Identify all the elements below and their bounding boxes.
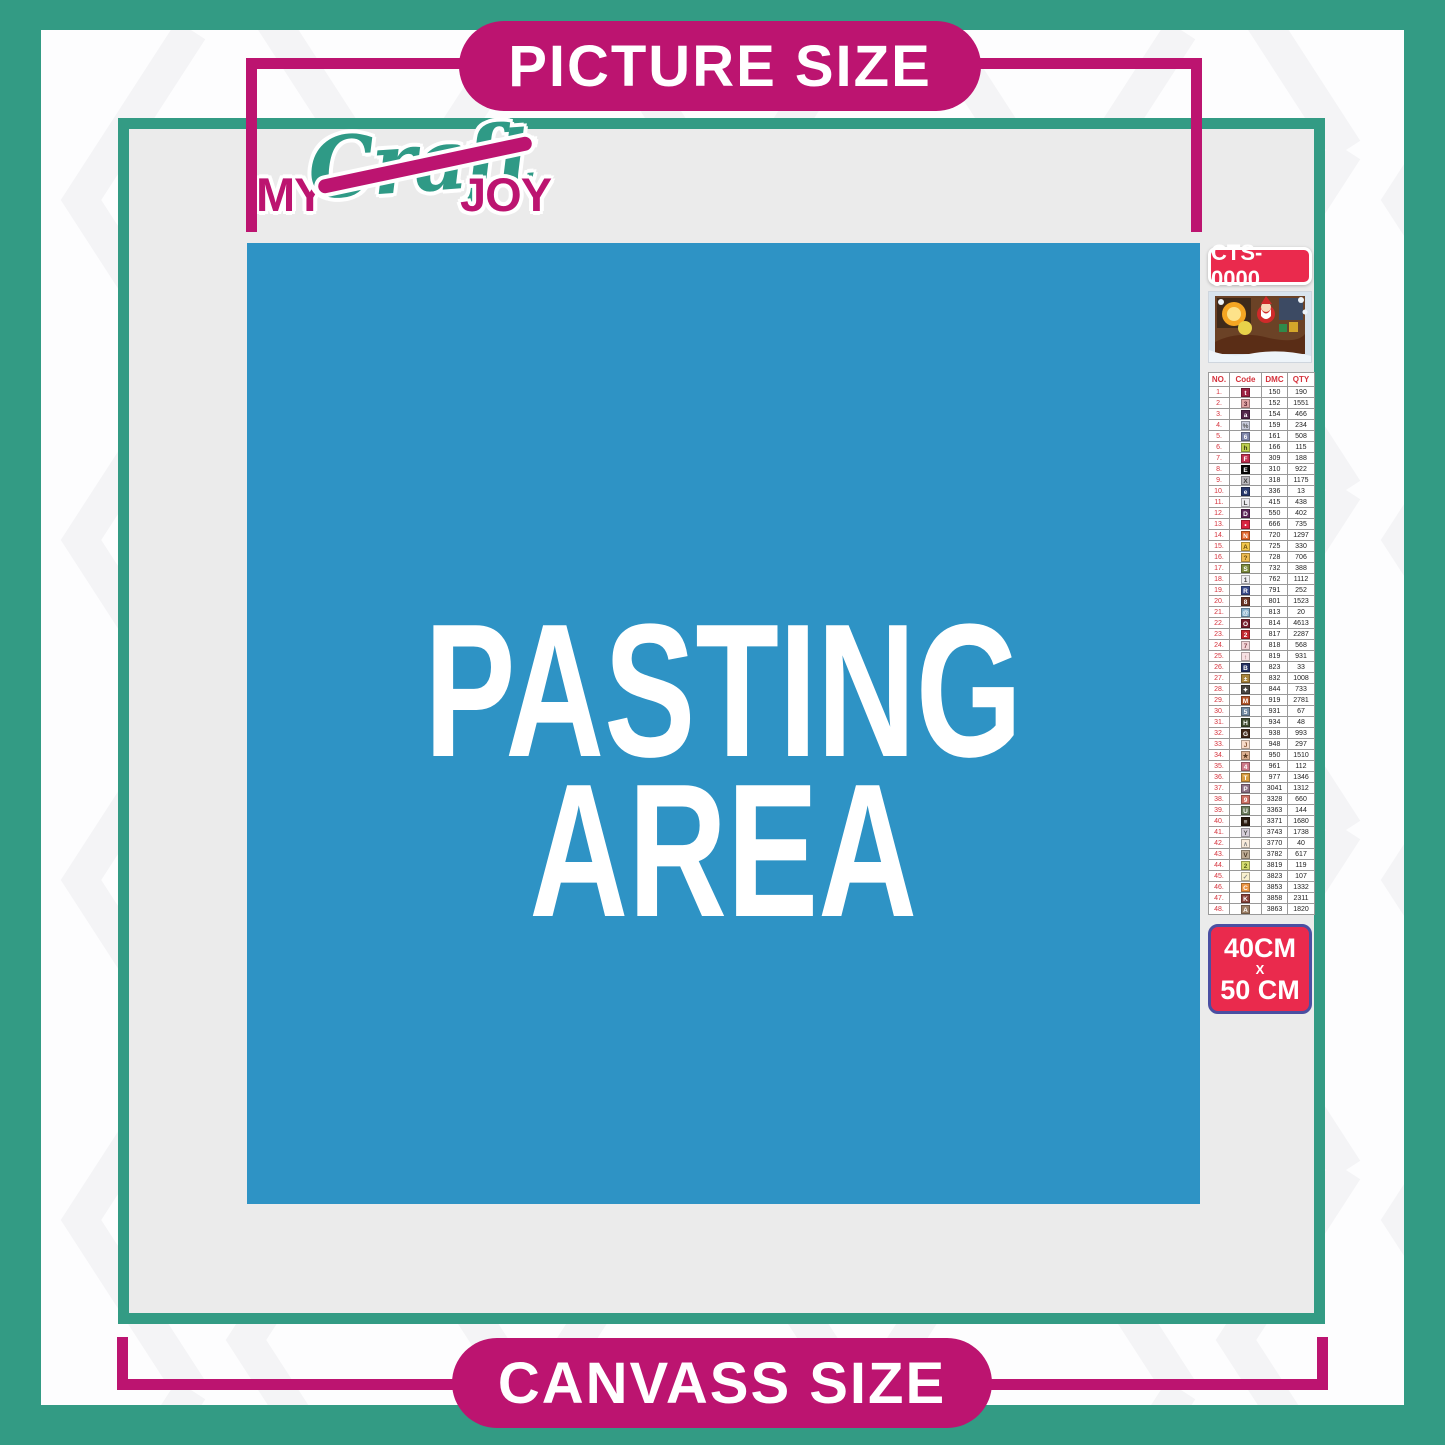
legend-cell-dmc: 3782 (1262, 849, 1288, 860)
legend-symbol-swatch: 3 (1241, 399, 1250, 408)
legend-cell-no: 26. (1209, 662, 1230, 673)
legend-cell-dmc: 813 (1262, 607, 1288, 618)
legend-cell-no: 8. (1209, 464, 1230, 475)
legend-symbol-swatch: 5 (1241, 707, 1250, 716)
legend-row: 44.23819119 (1209, 860, 1315, 871)
legend-cell-no: 19. (1209, 585, 1230, 596)
legend-cell-no: 6. (1209, 442, 1230, 453)
legend-cell-code: Y (1230, 827, 1262, 838)
legend-cell-code: ✦ (1230, 684, 1262, 695)
legend-symbol-swatch: U (1241, 806, 1250, 815)
kit-size-x: X (1256, 963, 1265, 976)
legend-cell-no: 21. (1209, 607, 1230, 618)
legend-cell-dmc: 3863 (1262, 904, 1288, 915)
legend-symbol-swatch: V (1241, 850, 1250, 859)
legend-cell-qty: 735 (1288, 519, 1315, 530)
legend-cell-qty: 733 (1288, 684, 1315, 695)
legend-row: 7.F309188 (1209, 453, 1315, 464)
legend-cell-dmc: 931 (1262, 706, 1288, 717)
legend-cell-qty: 330 (1288, 541, 1315, 552)
legend-row: 4.%159234 (1209, 420, 1315, 431)
legend-cell-no: 3. (1209, 409, 1230, 420)
legend-cell-dmc: 950 (1262, 750, 1288, 761)
legend-cell-dmc: 415 (1262, 497, 1288, 508)
legend-symbol-swatch: P (1241, 784, 1250, 793)
legend-cell-qty: 1297 (1288, 530, 1315, 541)
legend-cell-no: 32. (1209, 728, 1230, 739)
legend-cell-code: h (1230, 442, 1262, 453)
legend-symbol-swatch: A (1241, 905, 1250, 914)
legend-cell-code: E (1230, 464, 1262, 475)
legend-row: 35.4961112 (1209, 761, 1315, 772)
legend-symbol-swatch: 8 (1241, 597, 1250, 606)
legend-cell-code: D (1230, 508, 1262, 519)
product-code-label: CTS-0000 (1211, 240, 1309, 292)
legend-cell-no: 23. (1209, 629, 1230, 640)
legend-cell-dmc: 3858 (1262, 893, 1288, 904)
legend-symbol-swatch: G (1241, 729, 1250, 738)
legend-row: 30.593167 (1209, 706, 1315, 717)
legend-cell-dmc: 844 (1262, 684, 1288, 695)
legend-row: 5.6161508 (1209, 431, 1315, 442)
legend-cell-no: 28. (1209, 684, 1230, 695)
legend-row: 47.K38582311 (1209, 893, 1315, 904)
legend-symbol-swatch: h (1241, 443, 1250, 452)
legend-row: 6.h166115 (1209, 442, 1315, 453)
legend-cell-dmc: 720 (1262, 530, 1288, 541)
legend-cell-qty: 13 (1288, 486, 1315, 497)
legend-symbol-swatch: ✦ (1241, 685, 1250, 694)
legend-row: 32.G938993 (1209, 728, 1315, 739)
legend-cell-dmc: 3328 (1262, 794, 1288, 805)
legend-row: 34.★9501510 (1209, 750, 1315, 761)
product-thumbnail (1208, 291, 1312, 363)
legend-row: 20.88011523 (1209, 596, 1315, 607)
legend-cell-no: 31. (1209, 717, 1230, 728)
legend-cell-no: 38. (1209, 794, 1230, 805)
brand-logo: MY Craft JOY (256, 124, 546, 236)
legend-cell-qty: 922 (1288, 464, 1315, 475)
legend-cell-no: 11. (1209, 497, 1230, 508)
legend-cell-qty: 466 (1288, 409, 1315, 420)
legend-row: 43.V3782617 (1209, 849, 1315, 860)
legend-symbol-swatch: • (1241, 520, 1250, 529)
legend-cell-no: 16. (1209, 552, 1230, 563)
legend-cell-no: 29. (1209, 695, 1230, 706)
legend-cell-qty: 234 (1288, 420, 1315, 431)
canvas-template-page: MY Craft JOY PASTING AREA PICTURE SIZE C… (0, 0, 1445, 1445)
kit-size-height: 50 CM (1220, 977, 1300, 1004)
legend-symbol-swatch: 2 (1241, 630, 1250, 639)
pasting-area: PASTING AREA (247, 243, 1200, 1204)
legend-row: 26.B82333 (1209, 662, 1315, 673)
legend-cell-dmc: 934 (1262, 717, 1288, 728)
legend-cell-no: 15. (1209, 541, 1230, 552)
legend-cell-code: F (1230, 453, 1262, 464)
legend-cell-qty: 568 (1288, 640, 1315, 651)
legend-symbol-swatch: ± (1241, 674, 1250, 683)
legend-cell-code: 6 (1230, 431, 1262, 442)
legend-symbol-swatch: K (1241, 894, 1250, 903)
canvass-bracket-left-rise (117, 1337, 128, 1390)
legend-cell-code: 3 (1230, 398, 1262, 409)
legend-cell-no: 33. (1209, 739, 1230, 750)
legend-symbol-swatch: ↑ (1241, 652, 1250, 661)
legend-cell-code: ★ (1230, 750, 1262, 761)
legend-cell-code: J (1230, 739, 1262, 750)
legend-cell-no: 35. (1209, 761, 1230, 772)
legend-cell-dmc: 725 (1262, 541, 1288, 552)
legend-cell-no: 25. (1209, 651, 1230, 662)
legend-cell-code: P (1230, 783, 1262, 794)
legend-cell-qty: 2311 (1288, 893, 1315, 904)
legend-cell-dmc: 150 (1262, 387, 1288, 398)
legend-row: 24.7818568 (1209, 640, 1315, 651)
legend-symbol-swatch: H (1241, 718, 1250, 727)
legend-cell-qty: 660 (1288, 794, 1315, 805)
legend-row: 3.a154466 (1209, 409, 1315, 420)
legend-cell-no: 46. (1209, 882, 1230, 893)
legend-cell-qty: 40 (1288, 838, 1315, 849)
legend-row: 13.•666735 (1209, 519, 1315, 530)
legend-cell-code: A (1230, 541, 1262, 552)
canvass-bracket-right-rise (1317, 1337, 1328, 1390)
legend-cell-no: 9. (1209, 475, 1230, 486)
legend-row: 1.t150190 (1209, 387, 1315, 398)
legend-cell-dmc: 823 (1262, 662, 1288, 673)
legend-cell-dmc: 801 (1262, 596, 1288, 607)
legend-symbol-swatch: ∧ (1241, 839, 1250, 848)
legend-cell-code: 2 (1230, 860, 1262, 871)
legend-symbol-swatch: 9 (1241, 795, 1250, 804)
legend-row: 16.?728706 (1209, 552, 1315, 563)
legend-cell-code: 7 (1230, 640, 1262, 651)
legend-row: 33.J948297 (1209, 739, 1315, 750)
legend-row: 11.L415438 (1209, 497, 1315, 508)
legend-row: 45.✓3823107 (1209, 871, 1315, 882)
legend-cell-qty: 297 (1288, 739, 1315, 750)
legend-symbol-swatch: ★ (1241, 751, 1250, 760)
legend-cell-no: 2. (1209, 398, 1230, 409)
legend-symbol-swatch: N (1241, 531, 1250, 540)
legend-cell-dmc: 732 (1262, 563, 1288, 574)
legend-cell-code: t (1230, 387, 1262, 398)
legend-cell-dmc: 819 (1262, 651, 1288, 662)
legend-cell-qty: 252 (1288, 585, 1315, 596)
legend-cell-dmc: 814 (1262, 618, 1288, 629)
legend-cell-code: X (1230, 475, 1262, 486)
legend-cell-dmc: 938 (1262, 728, 1288, 739)
canvass-size-label: CANVASS SIZE (498, 1350, 946, 1417)
legend-cell-qty: 67 (1288, 706, 1315, 717)
legend-cell-qty: 112 (1288, 761, 1315, 772)
legend-cell-no: 5. (1209, 431, 1230, 442)
legend-cell-dmc: 3770 (1262, 838, 1288, 849)
legend-cell-dmc: 3819 (1262, 860, 1288, 871)
legend-cell-qty: 1008 (1288, 673, 1315, 684)
legend-cell-code: B (1230, 662, 1262, 673)
legend-cell-dmc: 3371 (1262, 816, 1288, 827)
legend-cell-code: C (1230, 882, 1262, 893)
legend-cell-qty: 1112 (1288, 574, 1315, 585)
legend-row: 39.U3363144 (1209, 805, 1315, 816)
legend-cell-dmc: 762 (1262, 574, 1288, 585)
legend-symbol-swatch: C (1241, 883, 1250, 892)
legend-header-row: NO. Code DMC QTY (1209, 373, 1315, 387)
legend-cell-dmc: 948 (1262, 739, 1288, 750)
legend-cell-code: ? (1230, 552, 1262, 563)
legend-cell-qty: 33 (1288, 662, 1315, 673)
legend-symbol-swatch: 4 (1241, 762, 1250, 771)
legend-table-body: 1.t1501902.315215513.a1544664.%1592345.6… (1209, 387, 1315, 915)
legend-symbol-swatch: J (1241, 740, 1250, 749)
picture-bracket-right-drop (1191, 58, 1202, 232)
legend-cell-dmc: 166 (1262, 442, 1288, 453)
legend-row: 42.∧377040 (1209, 838, 1315, 849)
legend-symbol-swatch: D (1241, 509, 1250, 518)
legend-cell-dmc: 3823 (1262, 871, 1288, 882)
legend-cell-qty: 706 (1288, 552, 1315, 563)
legend-symbol-swatch: 1 (1241, 575, 1250, 584)
legend-row: 21.@81320 (1209, 607, 1315, 618)
legend-cell-no: 13. (1209, 519, 1230, 530)
legend-symbol-swatch: L (1241, 498, 1250, 507)
legend-cell-no: 44. (1209, 860, 1230, 871)
legend-cell-no: 20. (1209, 596, 1230, 607)
legend-row: 8.E310922 (1209, 464, 1315, 475)
legend-row: 14.N7201297 (1209, 530, 1315, 541)
legend-symbol-swatch: S (1241, 564, 1250, 573)
legend-row: 12.D550402 (1209, 508, 1315, 519)
legend-cell-code: L (1230, 497, 1262, 508)
legend-cell-code: ≡ (1230, 816, 1262, 827)
legend-cell-qty: 617 (1288, 849, 1315, 860)
legend-row: 29.M9192781 (1209, 695, 1315, 706)
legend-cell-qty: 1332 (1288, 882, 1315, 893)
legend-cell-dmc: 154 (1262, 409, 1288, 420)
legend-cell-code: 4 (1230, 761, 1262, 772)
legend-symbol-swatch: 6 (1241, 432, 1250, 441)
legend-row: 19.R791252 (1209, 585, 1315, 596)
legend-cell-code: V (1230, 849, 1262, 860)
legend-cell-no: 39. (1209, 805, 1230, 816)
legend-cell-dmc: 817 (1262, 629, 1288, 640)
legend-row: 10.e33613 (1209, 486, 1315, 497)
legend-cell-qty: 1346 (1288, 772, 1315, 783)
canvass-size-pill: CANVASS SIZE (452, 1338, 992, 1428)
legend-symbol-swatch: E (1241, 465, 1250, 474)
legend-header-qty: QTY (1288, 373, 1315, 387)
legend-cell-code: R (1230, 585, 1262, 596)
legend-cell-qty: 2781 (1288, 695, 1315, 706)
legend-cell-qty: 4613 (1288, 618, 1315, 629)
legend-row: 17.S732388 (1209, 563, 1315, 574)
legend-cell-dmc: 977 (1262, 772, 1288, 783)
legend-cell-dmc: 3041 (1262, 783, 1288, 794)
legend-cell-qty: 48 (1288, 717, 1315, 728)
legend-row: 18.17621112 (1209, 574, 1315, 585)
legend-cell-dmc: 791 (1262, 585, 1288, 596)
legend-row: 25.↑819931 (1209, 651, 1315, 662)
legend-cell-code: a (1230, 409, 1262, 420)
legend-cell-dmc: 3853 (1262, 882, 1288, 893)
legend-cell-dmc: 310 (1262, 464, 1288, 475)
legend-cell-qty: 1551 (1288, 398, 1315, 409)
legend-cell-code: ✓ (1230, 871, 1262, 882)
legend-row: 15.A725330 (1209, 541, 1315, 552)
legend-panel: CTS-0000 (1208, 247, 1314, 1014)
kit-size-width: 40CM (1224, 935, 1296, 962)
legend-cell-no: 10. (1209, 486, 1230, 497)
legend-cell-qty: 188 (1288, 453, 1315, 464)
legend-cell-no: 37. (1209, 783, 1230, 794)
kit-size-badge: 40CM X 50 CM (1208, 924, 1312, 1014)
legend-cell-qty: 1312 (1288, 783, 1315, 794)
legend-cell-dmc: 550 (1262, 508, 1288, 519)
legend-cell-code: ↑ (1230, 651, 1262, 662)
legend-header-no: NO. (1209, 373, 1230, 387)
legend-cell-dmc: 161 (1262, 431, 1288, 442)
legend-cell-code: @ (1230, 607, 1262, 618)
legend-cell-code: 8 (1230, 596, 1262, 607)
legend-cell-qty: 388 (1288, 563, 1315, 574)
legend-row: 22.O8144613 (1209, 618, 1315, 629)
legend-cell-code: e (1230, 486, 1262, 497)
legend-cell-no: 12. (1209, 508, 1230, 519)
legend-cell-no: 47. (1209, 893, 1230, 904)
legend-cell-qty: 931 (1288, 651, 1315, 662)
picture-bracket-left-drop (246, 58, 257, 232)
legend-cell-no: 27. (1209, 673, 1230, 684)
legend-symbol-swatch: X (1241, 476, 1250, 485)
logo-text-joy: JOY (460, 167, 551, 222)
product-code-badge: CTS-0000 (1208, 247, 1312, 285)
legend-cell-dmc: 832 (1262, 673, 1288, 684)
legend-cell-no: 24. (1209, 640, 1230, 651)
legend-row: 46.C38531332 (1209, 882, 1315, 893)
legend-cell-code: 2 (1230, 629, 1262, 640)
legend-cell-dmc: 728 (1262, 552, 1288, 563)
legend-cell-dmc: 666 (1262, 519, 1288, 530)
legend-cell-qty: 107 (1288, 871, 1315, 882)
legend-cell-no: 17. (1209, 563, 1230, 574)
legend-cell-qty: 402 (1288, 508, 1315, 519)
picture-size-pill: PICTURE SIZE (459, 21, 981, 111)
legend-cell-qty: 1175 (1288, 475, 1315, 486)
legend-cell-code: K (1230, 893, 1262, 904)
legend-symbol-swatch: A (1241, 542, 1250, 551)
legend-cell-dmc: 318 (1262, 475, 1288, 486)
legend-cell-code: 1 (1230, 574, 1262, 585)
legend-row: 48.A38631820 (1209, 904, 1315, 915)
legend-cell-no: 14. (1209, 530, 1230, 541)
legend-cell-code: A (1230, 904, 1262, 915)
legend-cell-code: 9 (1230, 794, 1262, 805)
legend-row: 27.±8321008 (1209, 673, 1315, 684)
legend-row: 38.93328660 (1209, 794, 1315, 805)
pasting-area-label: PASTING AREA (425, 612, 1023, 931)
legend-symbol-swatch: O (1241, 619, 1250, 628)
legend-symbol-swatch: a (1241, 410, 1250, 419)
legend-symbol-swatch: M (1241, 696, 1250, 705)
legend-symbol-swatch: Y (1241, 828, 1250, 837)
legend-cell-no: 4. (1209, 420, 1230, 431)
legend-cell-no: 34. (1209, 750, 1230, 761)
legend-cell-dmc: 159 (1262, 420, 1288, 431)
legend-cell-code: ∧ (1230, 838, 1262, 849)
legend-row: 2.31521551 (1209, 398, 1315, 409)
legend-cell-code: % (1230, 420, 1262, 431)
legend-row: 31.H93448 (1209, 717, 1315, 728)
legend-cell-dmc: 309 (1262, 453, 1288, 464)
legend-cell-code: G (1230, 728, 1262, 739)
legend-cell-code: ± (1230, 673, 1262, 684)
legend-row: 9.X3181175 (1209, 475, 1315, 486)
legend-cell-qty: 1510 (1288, 750, 1315, 761)
legend-row: 28.✦844733 (1209, 684, 1315, 695)
legend-header-dmc: DMC (1262, 373, 1288, 387)
legend-cell-dmc: 3743 (1262, 827, 1288, 838)
legend-cell-no: 42. (1209, 838, 1230, 849)
legend-cell-qty: 1680 (1288, 816, 1315, 827)
legend-cell-code: • (1230, 519, 1262, 530)
legend-cell-dmc: 152 (1262, 398, 1288, 409)
legend-symbol-swatch: e (1241, 487, 1250, 496)
legend-cell-qty: 993 (1288, 728, 1315, 739)
legend-cell-no: 36. (1209, 772, 1230, 783)
legend-cell-code: U (1230, 805, 1262, 816)
legend-symbol-swatch: 7 (1241, 641, 1250, 650)
legend-symbol-swatch: T (1241, 773, 1250, 782)
legend-symbol-swatch: B (1241, 663, 1250, 672)
legend-row: 41.Y37431738 (1209, 827, 1315, 838)
legend-cell-qty: 508 (1288, 431, 1315, 442)
legend-symbol-swatch: F (1241, 454, 1250, 463)
legend-row: 23.28172287 (1209, 629, 1315, 640)
color-legend-table: NO. Code DMC QTY 1.t1501902.315215513.a1… (1208, 372, 1315, 915)
legend-cell-code: T (1230, 772, 1262, 783)
legend-row: 37.P30411312 (1209, 783, 1315, 794)
legend-cell-dmc: 336 (1262, 486, 1288, 497)
legend-cell-no: 1. (1209, 387, 1230, 398)
legend-symbol-swatch: ≡ (1241, 817, 1250, 826)
legend-cell-dmc: 961 (1262, 761, 1288, 772)
legend-cell-code: S (1230, 563, 1262, 574)
legend-cell-qty: 438 (1288, 497, 1315, 508)
legend-cell-no: 7. (1209, 453, 1230, 464)
legend-cell-qty: 144 (1288, 805, 1315, 816)
legend-cell-code: H (1230, 717, 1262, 728)
legend-symbol-swatch: ? (1241, 553, 1250, 562)
legend-cell-dmc: 818 (1262, 640, 1288, 651)
legend-cell-no: 22. (1209, 618, 1230, 629)
legend-cell-no: 30. (1209, 706, 1230, 717)
legend-row: 40.≡33711680 (1209, 816, 1315, 827)
legend-symbol-swatch: ✓ (1241, 872, 1250, 881)
legend-cell-qty: 190 (1288, 387, 1315, 398)
legend-cell-no: 41. (1209, 827, 1230, 838)
legend-row: 36.T9771346 (1209, 772, 1315, 783)
legend-cell-qty: 1738 (1288, 827, 1315, 838)
legend-symbol-swatch: % (1241, 421, 1250, 430)
legend-cell-dmc: 919 (1262, 695, 1288, 706)
legend-symbol-swatch: t (1241, 388, 1250, 397)
legend-cell-qty: 115 (1288, 442, 1315, 453)
legend-cell-no: 18. (1209, 574, 1230, 585)
legend-cell-code: N (1230, 530, 1262, 541)
legend-symbol-swatch: @ (1241, 608, 1250, 617)
legend-cell-code: 5 (1230, 706, 1262, 717)
